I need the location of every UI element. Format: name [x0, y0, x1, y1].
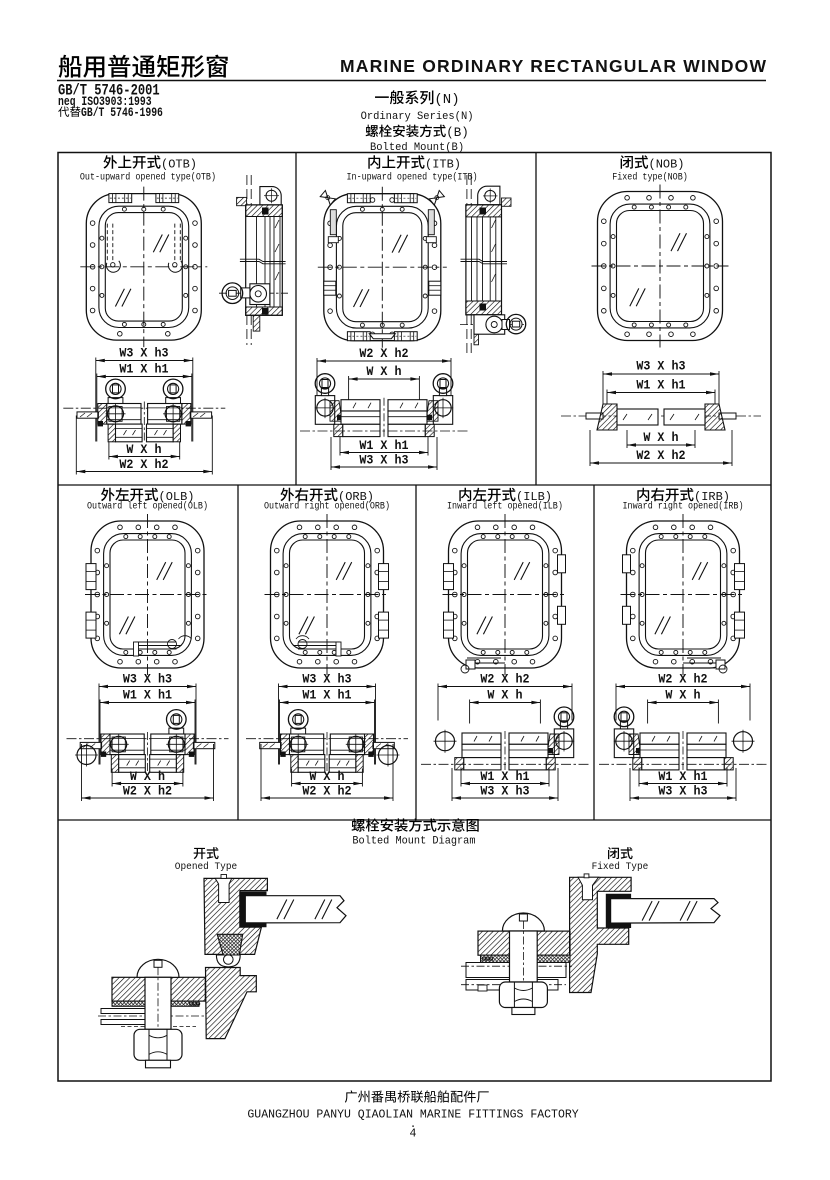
- svg-text:Outward left opened(OLB): Outward left opened(OLB): [87, 501, 208, 513]
- svg-text:W3 X h3: W3 X h3: [359, 453, 408, 468]
- svg-text:W3 X h3: W3 X h3: [636, 359, 685, 374]
- svg-text:W2 X h2: W2 X h2: [658, 672, 707, 687]
- svg-text:W X h: W X h: [366, 364, 401, 379]
- svg-text:Fixed type(NOB): Fixed type(NOB): [612, 172, 688, 184]
- svg-text:Inward right opened(IRB): Inward right opened(IRB): [623, 501, 744, 513]
- svg-text:Bolted Mount Diagram: Bolted Mount Diagram: [352, 836, 475, 848]
- svg-text:(OTB): (OTB): [161, 158, 197, 172]
- svg-text:W1 X h1: W1 X h1: [636, 378, 685, 393]
- svg-text:W2 X h2: W2 X h2: [119, 457, 168, 472]
- svg-text:W1 X h1: W1 X h1: [123, 688, 172, 703]
- svg-text:Out-upward opened type(OTB): Out-upward opened type(OTB): [80, 172, 216, 184]
- svg-text:W1 X h1: W1 X h1: [119, 362, 168, 377]
- svg-text:W3 X h3: W3 X h3: [302, 672, 351, 687]
- svg-text:W1 X h1: W1 X h1: [302, 688, 351, 703]
- svg-text:(N): (N): [434, 92, 459, 108]
- svg-text:In-upward opened type(ITB): In-upward opened type(ITB): [347, 172, 478, 184]
- svg-text:Outward right opened(ORB): Outward right opened(ORB): [264, 501, 390, 513]
- svg-text:W1 X h1: W1 X h1: [658, 769, 707, 784]
- svg-text:Ordinary Series(N): Ordinary Series(N): [361, 111, 474, 123]
- svg-text:W2 X h2: W2 X h2: [636, 448, 685, 463]
- svg-text:(B): (B): [446, 126, 469, 140]
- svg-text:Fixed Type: Fixed Type: [592, 861, 649, 873]
- svg-text:(NOB): (NOB): [649, 158, 685, 172]
- svg-text:W X h: W X h: [130, 769, 165, 784]
- svg-text:Inward left opened(ILB): Inward left opened(ILB): [447, 501, 563, 513]
- svg-text:W X h: W X h: [126, 442, 161, 457]
- svg-text:W3 X h3: W3 X h3: [658, 784, 707, 799]
- svg-text:Opened Type: Opened Type: [175, 861, 237, 873]
- svg-text:GB/T 5746-1996: GB/T 5746-1996: [81, 105, 163, 120]
- svg-text:W X h: W X h: [309, 769, 344, 784]
- svg-text:W2 X h2: W2 X h2: [302, 784, 351, 799]
- svg-text:(ITB): (ITB): [425, 158, 461, 172]
- svg-text:MARINE ORDINARY RECTANGULAR WI: MARINE ORDINARY RECTANGULAR WINDOW: [340, 56, 766, 76]
- svg-text:W1 X h1: W1 X h1: [359, 438, 408, 453]
- svg-text:4: 4: [410, 1128, 417, 1141]
- svg-text:W X h: W X h: [643, 430, 678, 445]
- svg-text:W2 X h2: W2 X h2: [480, 672, 529, 687]
- svg-text:W X h: W X h: [487, 688, 522, 703]
- svg-text:W X h: W X h: [665, 688, 700, 703]
- svg-text:W3 X h3: W3 X h3: [119, 346, 168, 361]
- svg-text:W3 X h3: W3 X h3: [123, 672, 172, 687]
- svg-text:W3 X h3: W3 X h3: [480, 784, 529, 799]
- svg-text:W1 X h1: W1 X h1: [480, 769, 529, 784]
- svg-text:W2 X h2: W2 X h2: [123, 784, 172, 799]
- svg-text:W2 X h2: W2 X h2: [359, 346, 408, 361]
